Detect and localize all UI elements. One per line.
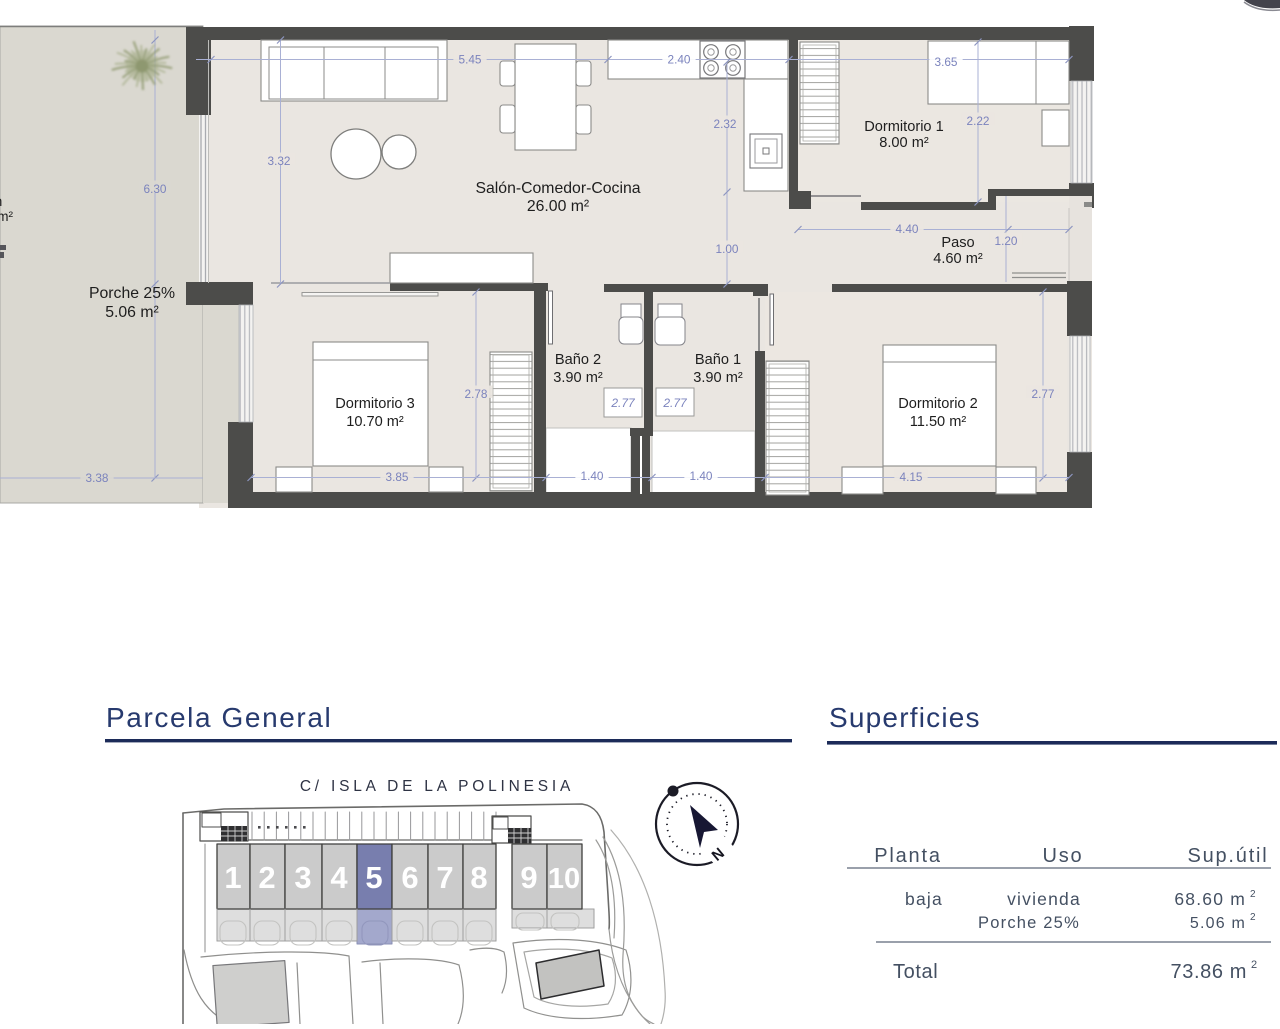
svg-text:1.20: 1.20 <box>995 234 1018 248</box>
svg-text:Dormitorio 2: Dormitorio 2 <box>898 396 977 412</box>
svg-text:2.78: 2.78 <box>465 387 488 401</box>
svg-text:4.15: 4.15 <box>900 470 923 484</box>
svg-text:Paso: Paso <box>941 235 974 251</box>
svg-text:Porche 25%: Porche 25% <box>978 914 1080 932</box>
svg-text:Dormitorio 1: Dormitorio 1 <box>864 119 943 135</box>
svg-text:2: 2 <box>1250 889 1257 900</box>
svg-text:73.86 m: 73.86 m <box>1171 961 1247 983</box>
svg-text:1.40: 1.40 <box>581 469 604 483</box>
svg-text:Salón-Comedor-Cocina: Salón-Comedor-Cocina <box>475 180 640 197</box>
svg-text:2: 2 <box>258 860 275 895</box>
svg-text:3: 3 <box>294 860 311 895</box>
svg-text:Baño 2: Baño 2 <box>555 352 601 368</box>
svg-text:7: 7 <box>436 860 453 895</box>
svg-text:3.90 m²: 3.90 m² <box>553 370 603 386</box>
svg-text:Superficies: Superficies <box>829 702 981 733</box>
svg-text:5.06 m: 5.06 m <box>1190 915 1246 932</box>
svg-text:6: 6 <box>401 860 418 895</box>
svg-text:Planta: Planta <box>874 845 942 867</box>
svg-text:Sup.útil: Sup.útil <box>1187 845 1268 867</box>
svg-text:3.65: 3.65 <box>935 55 958 69</box>
svg-text:Dormitorio 3: Dormitorio 3 <box>335 396 414 412</box>
svg-text:9: 9 <box>520 860 537 895</box>
svg-text:ín: ín <box>0 194 2 209</box>
svg-text:1.40: 1.40 <box>690 469 713 483</box>
svg-text:4: 4 <box>330 860 348 895</box>
svg-text:2.77: 2.77 <box>1032 387 1055 401</box>
svg-text:vivienda: vivienda <box>1007 889 1081 909</box>
svg-text:2: 2 <box>1250 912 1257 923</box>
svg-text:5.45: 5.45 <box>459 52 482 66</box>
svg-text:C/ ISLA DE LA POLINESIA: C/ ISLA DE LA POLINESIA <box>300 778 574 795</box>
svg-text:2: 2 <box>1251 959 1258 971</box>
svg-text:26.00 m²: 26.00 m² <box>527 198 589 215</box>
svg-text:8: 8 <box>470 860 487 895</box>
svg-text:4.60 m²: 4.60 m² <box>933 251 983 267</box>
svg-text:1: 1 <box>224 860 241 895</box>
svg-text:8.00 m²: 8.00 m² <box>879 135 929 151</box>
svg-text:6.30: 6.30 <box>144 182 167 196</box>
svg-text:2.77: 2.77 <box>610 396 636 410</box>
svg-text:3.85: 3.85 <box>386 470 409 484</box>
svg-text:11.50 m²: 11.50 m² <box>910 414 967 430</box>
svg-text:Total: Total <box>893 961 938 983</box>
svg-text:68.60 m: 68.60 m <box>1174 889 1246 909</box>
svg-text:Parcela General: Parcela General <box>106 702 332 733</box>
svg-text:2.32: 2.32 <box>714 117 737 131</box>
svg-text:10.70 m²: 10.70 m² <box>346 414 404 430</box>
svg-text:Uso: Uso <box>1043 845 1084 867</box>
svg-text:2.77: 2.77 <box>662 396 688 410</box>
svg-text:baja: baja <box>905 889 943 909</box>
svg-text:2.40: 2.40 <box>668 52 691 66</box>
svg-text:10: 10 <box>548 863 580 895</box>
svg-text:3.32: 3.32 <box>268 154 291 168</box>
svg-text:5.06 m²: 5.06 m² <box>105 304 159 321</box>
svg-text:4.40: 4.40 <box>896 222 919 236</box>
svg-text:5: 5 <box>365 860 382 895</box>
svg-text:2.22: 2.22 <box>967 114 990 128</box>
svg-text:Baño 1: Baño 1 <box>695 352 741 368</box>
svg-text:0 m²: 0 m² <box>0 209 14 224</box>
svg-text:Porche 25%: Porche 25% <box>89 285 175 302</box>
svg-text:1.00: 1.00 <box>716 242 739 256</box>
svg-text:3.90 m²: 3.90 m² <box>693 370 743 386</box>
svg-text:3.38: 3.38 <box>86 471 109 485</box>
